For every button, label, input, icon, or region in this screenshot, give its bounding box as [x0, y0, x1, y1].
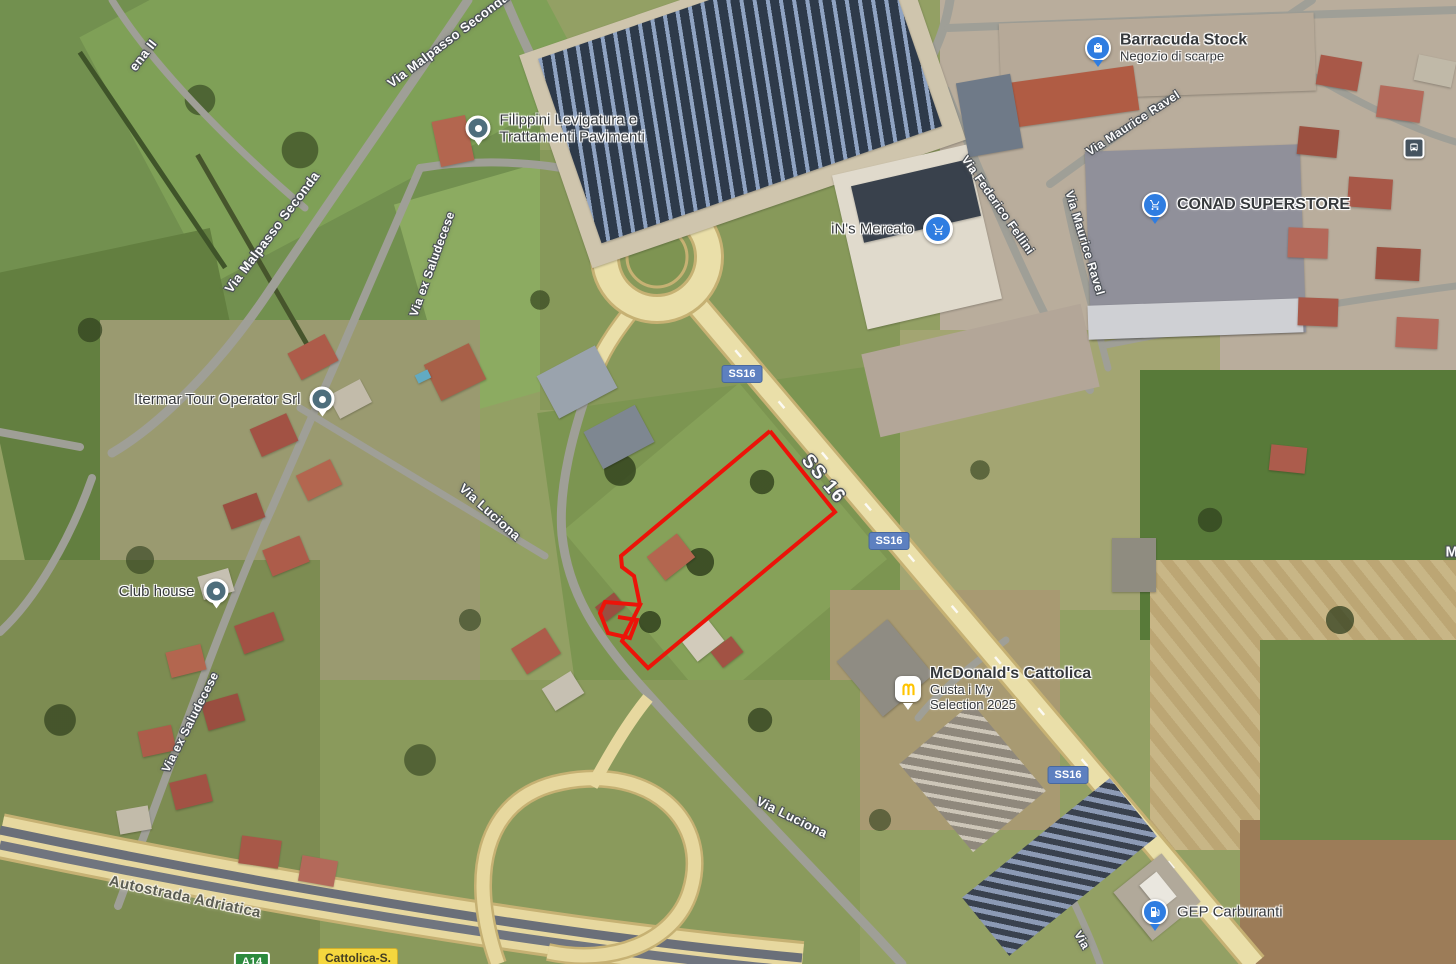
place-pin-icon[interactable] — [466, 116, 491, 141]
poi-barracuda-stock[interactable]: Barracuda Stock Negozio di scarpe — [1085, 35, 1111, 61]
road-label: Via Malpasso Seconda — [221, 168, 322, 295]
road-label: Via ex Saludecese — [159, 670, 222, 775]
shopping-bag-icon[interactable] — [1085, 35, 1111, 61]
poi-label[interactable]: McDonald's Cattolica Gusta i My Selectio… — [930, 665, 1091, 713]
poi-name: CONAD SUPERSTORE — [1177, 196, 1350, 214]
poi-club-house[interactable]: Club house — [204, 579, 229, 604]
poi-name: Filippini Levigatura e — [500, 111, 645, 128]
poi-label[interactable]: Filippini Levigatura e Trattamenti Pavim… — [500, 111, 645, 146]
place-pin-icon[interactable] — [204, 579, 229, 604]
road-label: Via Luciona — [754, 793, 830, 840]
fuel-pump-icon[interactable] — [1142, 899, 1168, 925]
road-label-ss16: SS 16 — [796, 450, 849, 508]
route-badge-ss16: SS16 — [869, 532, 910, 550]
route-badge-a14: A14 — [234, 952, 270, 964]
poi-label[interactable]: Club house — [119, 582, 195, 599]
road-label: Via ex Saludecese — [406, 210, 457, 319]
poi-subtitle: Negozio di scarpe — [1120, 50, 1247, 65]
labels-layer: ena II Via Malpasso Seconda Via Malpasso… — [0, 0, 1456, 964]
poi-name: iN's Mercato — [831, 220, 914, 237]
poi-name: GEP Carburanti — [1177, 903, 1283, 920]
road-label: Via Malpasso Seconda — [384, 0, 511, 91]
poi-name-line2: Trattamenti Pavimenti — [500, 128, 645, 145]
exit-badge-cattolica: Cattolica-S. — [318, 948, 398, 964]
route-badge-ss16: SS16 — [1048, 766, 1089, 784]
poi-bus-stop[interactable] — [1404, 138, 1425, 159]
road-label-partial: M — [1446, 544, 1456, 561]
road-label: Via Luciona — [456, 481, 523, 544]
road-label-autostrada: Autostrada Adriatica — [107, 873, 262, 922]
poi-label[interactable]: Itermar Tour Operator Srl — [134, 390, 300, 407]
road-label: ena II — [126, 36, 160, 73]
shopping-cart-icon[interactable] — [923, 214, 953, 244]
road-label: Via Federico Fellini — [959, 153, 1038, 257]
poi-label[interactable]: iN's Mercato — [831, 220, 914, 237]
route-badge-ss16: SS16 — [722, 365, 763, 383]
poi-label[interactable]: GEP Carburanti — [1177, 903, 1283, 920]
poi-label[interactable]: Barracuda Stock Negozio di scarpe — [1120, 31, 1247, 64]
poi-name: McDonald's Cattolica — [930, 665, 1091, 683]
poi-name: Itermar Tour Operator Srl — [134, 390, 300, 407]
poi-subtitle-line2: Selection 2025 — [930, 698, 1091, 713]
poi-ins-mercato[interactable]: iN's Mercato — [923, 214, 953, 244]
bus-stop-icon[interactable] — [1404, 138, 1425, 159]
road-label: Via Maurice Ravel — [1084, 88, 1183, 159]
poi-gep-carburanti[interactable]: GEP Carburanti — [1142, 899, 1168, 925]
place-pin-icon[interactable] — [310, 387, 335, 412]
mcdonalds-arches-icon[interactable] — [895, 676, 921, 702]
poi-itermar[interactable]: Itermar Tour Operator Srl — [310, 387, 335, 412]
satellite-map[interactable]: ena II Via Malpasso Seconda Via Malpasso… — [0, 0, 1456, 964]
poi-conad-superstore[interactable]: CONAD SUPERSTORE — [1142, 192, 1168, 218]
poi-name: Barracuda Stock — [1120, 31, 1247, 49]
poi-mcdonalds[interactable]: McDonald's Cattolica Gusta i My Selectio… — [895, 676, 921, 702]
road-label: Via — [1071, 928, 1093, 951]
poi-filippini[interactable]: Filippini Levigatura e Trattamenti Pavim… — [466, 116, 491, 141]
shopping-cart-icon[interactable] — [1142, 192, 1168, 218]
poi-label[interactable]: CONAD SUPERSTORE — [1177, 196, 1350, 214]
road-label: Via Maurice Ravel — [1062, 189, 1107, 297]
poi-name: Club house — [119, 582, 195, 599]
